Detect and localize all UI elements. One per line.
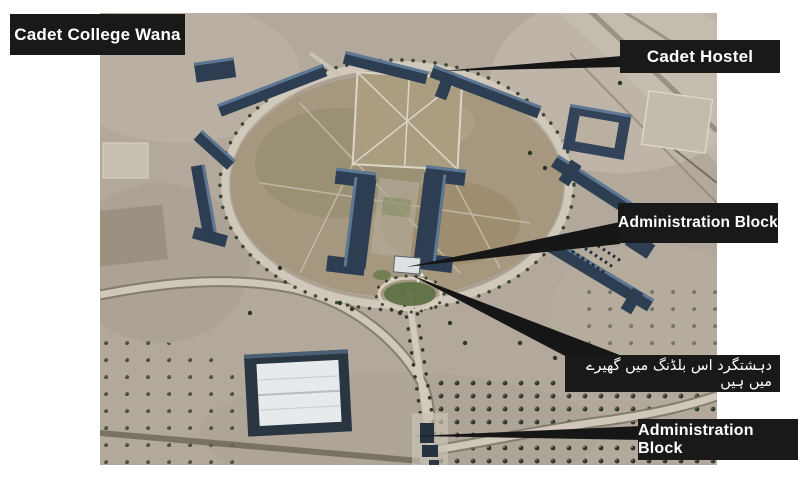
college-title-label: Cadet College Wana (10, 14, 185, 55)
south-gate-buildings (412, 413, 448, 465)
cadet-hostel-text: Cadet Hostel (647, 47, 753, 67)
annotated-satellite-view: Cadet College Wana Cadet Hostel Administ… (0, 0, 800, 480)
administration-block-text: Administration Block (618, 214, 778, 232)
administration-block-gate-label: Administration Block (638, 419, 798, 460)
urdu-caption-label: دہشتگرد اس بلڈنگ میں گھیرے میں ہیں (565, 355, 780, 392)
southwest-hall-building (244, 349, 352, 436)
urdu-caption-text: دہشتگرد اس بلڈنگ میں گھیرے میں ہیں (573, 358, 772, 390)
college-title-text: Cadet College Wana (14, 25, 180, 45)
administration-block-gate-text: Administration Block (638, 422, 798, 458)
administration-block-label: Administration Block (618, 203, 778, 243)
cadet-hostel-label: Cadet Hostel (620, 40, 780, 73)
